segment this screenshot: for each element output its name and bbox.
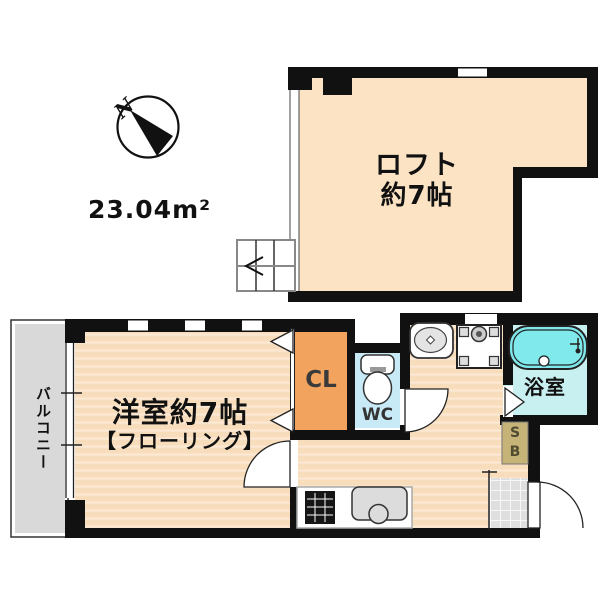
wall [513,167,598,178]
wall [513,167,522,302]
wall [347,319,355,440]
compass-icon [118,97,179,158]
wall-recess [465,314,497,325]
closet-floor [295,329,347,430]
floor-plan: N 23.04m² ロフト 約7帖 洋室約7帖 【フローリング】 バルコニー C… [0,0,600,600]
balcony-floor [15,324,65,533]
wall-corner [65,319,85,343]
shoe-box [502,422,528,464]
wall [65,319,355,332]
stairs-icon [237,240,295,291]
entrance-tile-floor [488,478,528,530]
kitchen-counter [297,487,412,528]
window [242,321,262,331]
loft-window [458,69,487,77]
washing-machine-icon [457,325,501,368]
wall-corner [288,67,312,90]
entrance-door [528,482,583,528]
window [185,321,205,331]
washbasin-icon [410,323,453,358]
pillar [323,73,352,95]
floor-plan-drawing [0,0,600,600]
main-room-floor [75,332,290,528]
bathtub-icon [509,326,587,369]
wall [65,528,540,538]
window [128,321,148,331]
toilet-icon [361,355,394,404]
wall [587,67,598,178]
kitchen-sink-icon [352,487,407,524]
wall [528,423,540,482]
wall [290,430,410,440]
wall [288,291,522,302]
wall [587,313,598,425]
loft-floor [291,78,587,291]
stove-icon [305,491,335,524]
